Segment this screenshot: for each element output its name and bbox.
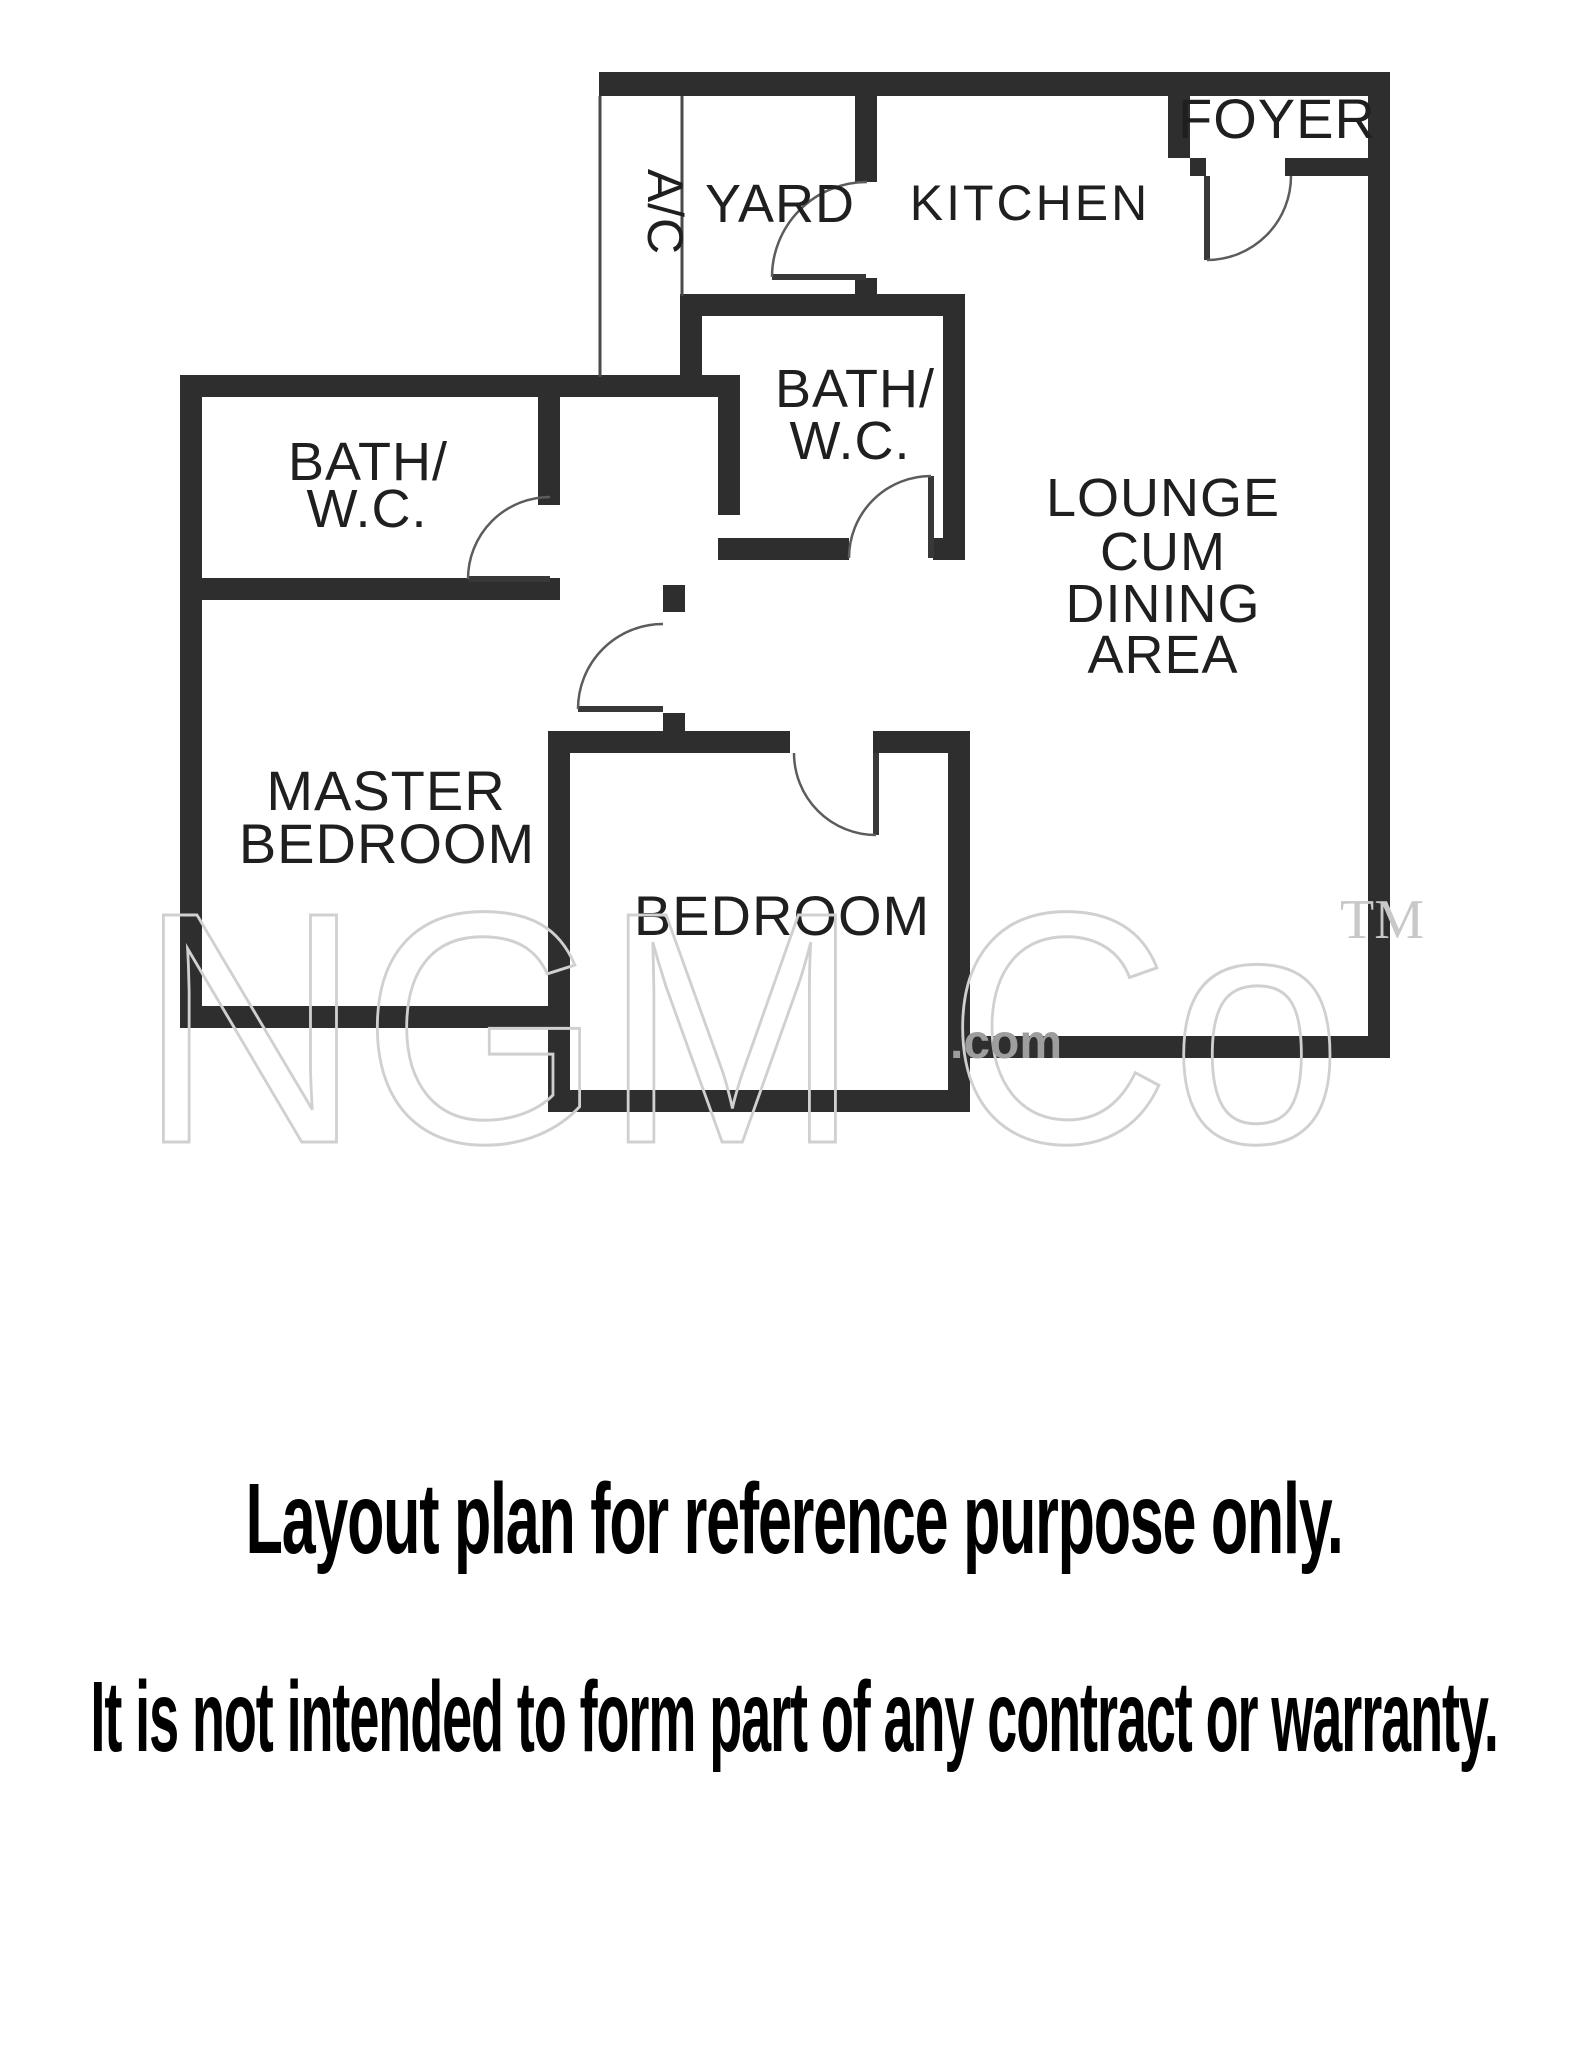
label-yard: YARD bbox=[705, 174, 855, 234]
caption-row-1: Layout plan for reference purpose only. bbox=[0, 1462, 1589, 1577]
wall-corridor-top bbox=[180, 375, 740, 397]
wall-bath-top-north bbox=[680, 294, 965, 316]
caption-reference-only: Layout plan for reference purpose only. bbox=[246, 1462, 1343, 1577]
wall-bedroom-top-left bbox=[548, 731, 790, 753]
wall-hall-jamb-upper bbox=[663, 585, 685, 612]
label-lounge-2: CUM bbox=[1100, 522, 1226, 582]
label-kitchen: KITCHEN bbox=[910, 175, 1150, 231]
label-bath-top-2: W.C. bbox=[790, 411, 911, 471]
wall-bath-left-east bbox=[538, 375, 560, 505]
wall-foyer-bottom bbox=[1285, 158, 1390, 176]
corridor-door-arc bbox=[578, 624, 663, 709]
label-lounge-4: AREA bbox=[1087, 625, 1238, 685]
bath-top-door-arc bbox=[849, 476, 931, 558]
wall-bath-top-south-jamb bbox=[933, 538, 965, 560]
foyer-door-arc bbox=[1207, 176, 1291, 260]
floor-plan-drawing: YARD A/C KITCHEN FOYER BATH/ W.C. BATH/ … bbox=[0, 0, 1589, 1230]
label-bath-left-2: W.C. bbox=[307, 479, 428, 539]
label-lounge-1: LOUNGE bbox=[1046, 468, 1280, 528]
watermark-domain: .com bbox=[950, 1016, 1062, 1069]
floor-plan-page: YARD A/C KITCHEN FOYER BATH/ W.C. BATH/ … bbox=[0, 0, 1589, 2048]
caption-row-2: It is not intended to form part of any c… bbox=[0, 1660, 1589, 1775]
label-bath-top-1: BATH/ bbox=[775, 359, 935, 419]
label-foyer: FOYER bbox=[1178, 87, 1376, 150]
label-ac: A/C bbox=[637, 169, 693, 255]
wall-bath-top-east bbox=[943, 294, 965, 560]
watermark: NGM Co .com TM bbox=[138, 843, 1424, 1212]
wall-foyer-jamb bbox=[1190, 158, 1206, 176]
watermark-brand: NGM Co bbox=[138, 843, 1343, 1212]
wall-yard-right bbox=[855, 96, 877, 182]
watermark-tm-mark: TM bbox=[1340, 889, 1424, 951]
bedroom-door-arc bbox=[794, 753, 876, 835]
wall-bath-top-south bbox=[718, 538, 849, 560]
wall-yard-jamb bbox=[855, 278, 877, 296]
wall-bath-top-west-upper bbox=[680, 294, 702, 375]
wall-bath-top-west-lower bbox=[718, 375, 740, 515]
wall-hall-jamb-lower bbox=[663, 713, 685, 733]
bath-left-door-arc bbox=[468, 497, 550, 579]
caption-no-warranty: It is not intended to form part of any c… bbox=[91, 1660, 1498, 1775]
